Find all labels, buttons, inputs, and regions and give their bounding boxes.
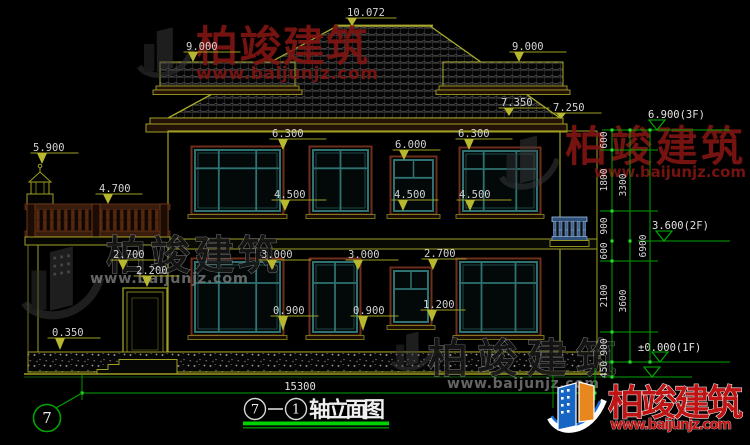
svg-text:4.500: 4.500 [459,189,491,201]
svg-text:1.200: 1.200 [423,299,455,311]
side-balcony-railing [550,217,589,247]
right-lower-roof [443,62,563,86]
svg-text:3.600(2F): 3.600(2F) [652,220,709,232]
svg-text:4.500: 4.500 [394,189,426,201]
chain-dim: 900 [599,338,610,355]
chain-dim: 2100 [599,284,610,307]
chain-dim: 3300 [618,173,629,196]
svg-text:5.900: 5.900 [33,142,65,154]
chain-dim: 3600 [618,289,629,312]
window-2f-1 [188,147,287,219]
marker-roof-right: 9.000 [510,41,566,62]
total-width-dim: 15300 [284,381,316,393]
chain-dim: 600 [599,131,610,148]
marker-railing: 4.700 [96,183,142,204]
left-lower-fascia [156,86,299,90]
window-2f-small [387,157,440,219]
svg-text:0.900: 0.900 [353,305,385,317]
title-axis-right: 1 [292,403,300,418]
left-lower-fascia2 [153,90,302,95]
main-cornice-top [150,118,563,124]
watermark-left-url: www.baijunjz.com [90,271,248,287]
watermark-top-url: www.baijunjz.com [196,64,378,84]
railing-post [27,204,35,237]
marker-ridge: 10.072 [346,7,396,26]
chain-dim: 450 [599,361,610,378]
svg-text:0.350: 0.350 [52,327,84,339]
marker-lantern: 5.900 [31,142,78,164]
svg-text:4.700: 4.700 [99,183,131,195]
svg-text:6.300: 6.300 [458,128,490,140]
drawing-canvas: 柏竣建筑 www.baijunjz.com 柏竣建筑 www.baijunjz.… [0,0,750,445]
svg-text:7.350: 7.350 [501,97,533,109]
chain-dim: 1800 [599,168,610,191]
terrace-railing [25,204,170,237]
svg-text:4.500: 4.500 [274,189,306,201]
svg-text:10.072: 10.072 [347,7,385,19]
svg-text:2.700: 2.700 [113,249,145,261]
axis-bubble-7: 7 [34,393,83,432]
title-underline-thin [243,427,389,428]
svg-text:3.000: 3.000 [348,249,380,261]
svg-text:9.000: 9.000 [186,41,218,53]
svg-text:6.900(3F): 6.900(3F) [648,109,705,121]
svg-text:3.000: 3.000 [261,249,293,261]
svg-text:±0.000(1F): ±0.000(1F) [638,342,701,354]
right-lower-fascia [439,86,567,90]
svg-text:2.200: 2.200 [136,265,168,277]
marker-plinth: 0.350 [48,327,100,350]
svg-text:0.900: 0.900 [273,305,305,317]
chain-dim: 900 [599,217,610,234]
svg-text:7.250: 7.250 [553,102,585,114]
chain-dim: 6900 [638,234,649,257]
watermark-icon-right [501,136,557,187]
watermark-right-url: www.baijunjz.com [594,163,746,181]
level-2f: 3.600(2F) [638,220,730,241]
brand-logo-url: www.baijunjz.com [610,417,732,433]
chain-dim: 600 [599,242,610,259]
title-underline [243,422,389,426]
title-axis-left: 7 [251,403,259,418]
terrace-slab [25,237,170,245]
svg-text:6.000: 6.000 [395,139,427,151]
entry-door [123,288,167,360]
cad-elevation-drawing: 柏竣建筑 www.baijunjz.com 柏竣建筑 www.baijunjz.… [0,0,750,445]
window-2f-2 [306,147,375,219]
level-1f: ±0.000(1F) [602,342,730,362]
window-1f-3 [453,259,544,340]
brand-logo: 柏竣建筑 www.baijunjz.com [550,382,743,433]
window-1f-2 [306,259,364,340]
svg-text:6.300: 6.300 [272,128,304,140]
railing-post [92,204,100,237]
drawing-title: 7 1 轴立面图 [243,397,389,428]
title-text: 轴立面图 [309,397,385,423]
svg-text:7: 7 [42,409,52,427]
svg-text:2.700: 2.700 [424,248,456,260]
right-lower-fascia2 [436,90,570,95]
svg-text:9.000: 9.000 [512,41,544,53]
lantern-finial [27,164,53,204]
